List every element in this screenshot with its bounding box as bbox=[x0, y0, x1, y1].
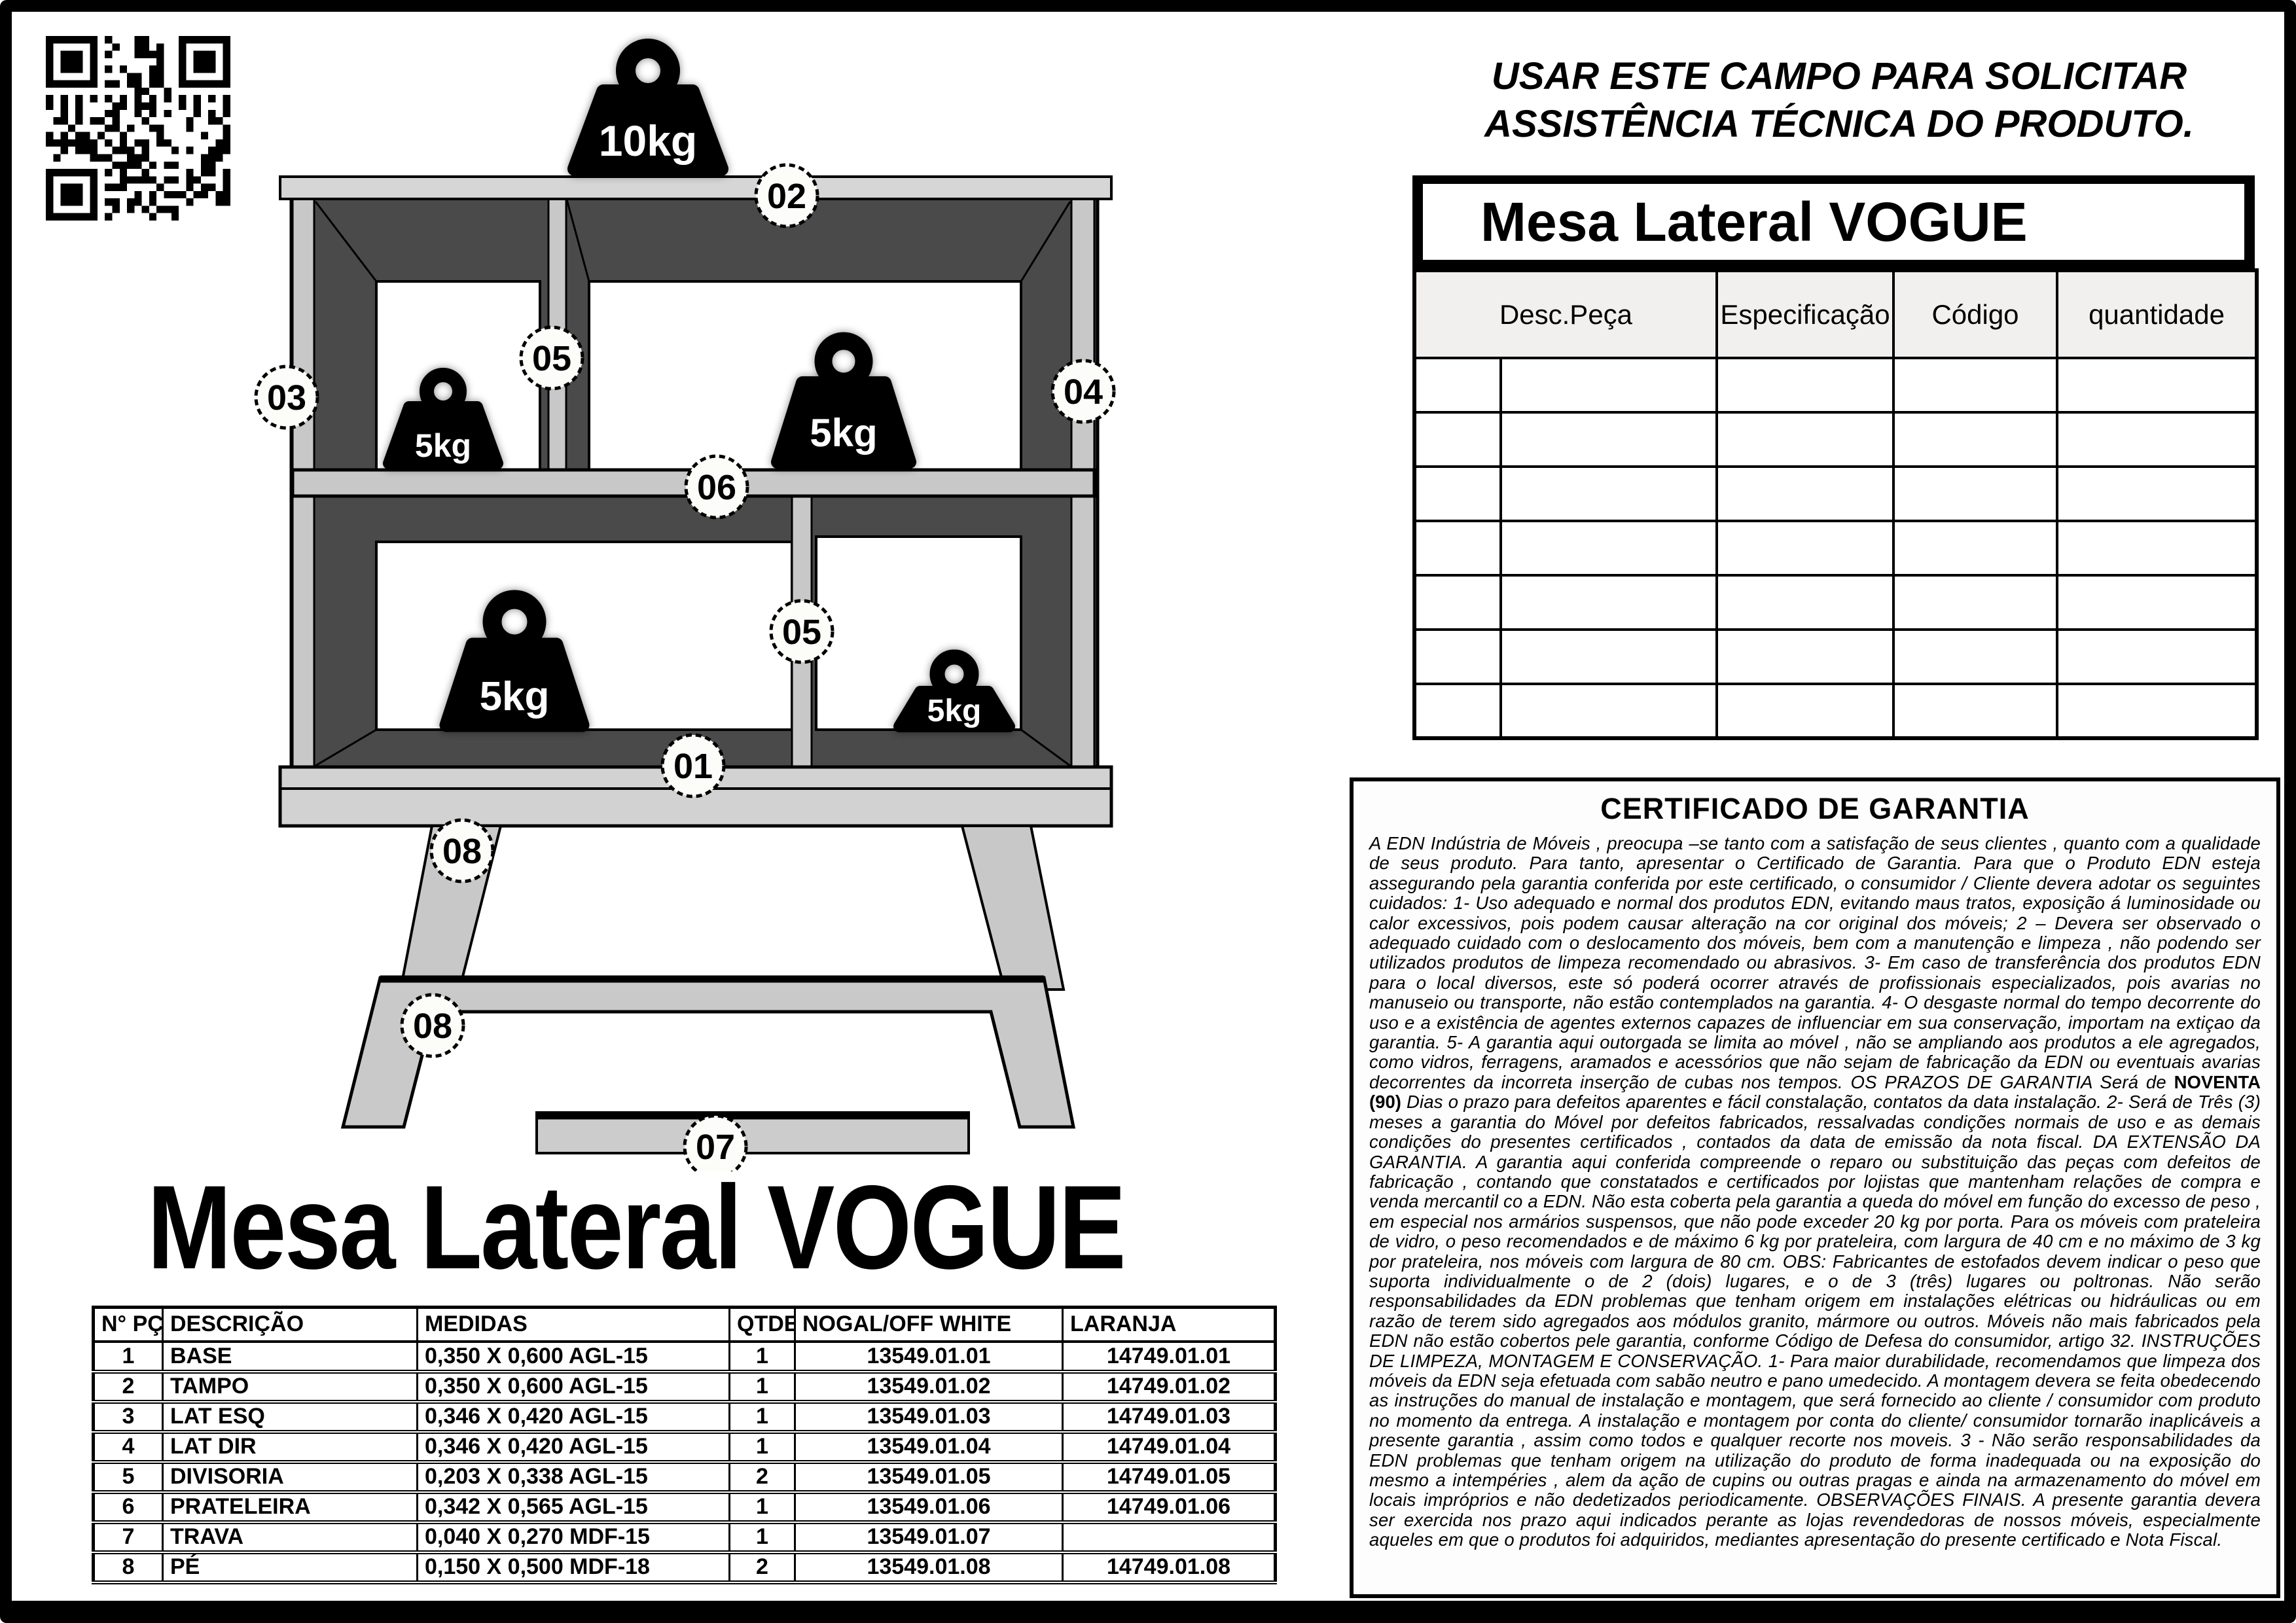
service-cell bbox=[1717, 412, 1893, 467]
service-cell bbox=[1414, 684, 1501, 738]
table-row: 6PRATELEIRA0,342 X 0,565 AGL-15113549.01… bbox=[94, 1492, 1276, 1522]
cell-qtde: 2 bbox=[730, 1462, 795, 1492]
cell-nogal: 13549.01.04 bbox=[795, 1432, 1063, 1462]
warranty-box: CERTIFICADO DE GARANTIA A EDN Indústria … bbox=[1350, 777, 2280, 1598]
service-cell bbox=[1893, 467, 2057, 521]
table-row: 7TRAVA0,040 X 0,270 MDF-15113549.01.07 bbox=[94, 1522, 1276, 1552]
service-cell bbox=[1501, 630, 1717, 684]
cell-num: 4 bbox=[94, 1432, 163, 1462]
service-cell bbox=[1414, 630, 1501, 684]
service-table-titlebar: Mesa Lateral VOGUE bbox=[1412, 175, 2255, 268]
cell-laranja: 14749.01.02 bbox=[1063, 1372, 1276, 1402]
parts-table-header-row: N° PÇ DESCRIÇÃO MEDIDAS QTDE NOGAL/OFF W… bbox=[94, 1308, 1276, 1342]
svg-text:04: 04 bbox=[1064, 372, 1103, 412]
service-empty-row bbox=[1414, 412, 2257, 467]
svg-text:08: 08 bbox=[442, 832, 482, 871]
service-cell bbox=[2057, 467, 2257, 521]
assembly-sheet: 10kg 5kg 5kg 5kg 5kg 02 03 bbox=[0, 0, 2296, 1623]
svg-text:5kg: 5kg bbox=[480, 674, 550, 719]
cell-med: 0,346 X 0,420 AGL-15 bbox=[418, 1432, 730, 1462]
cell-num: 3 bbox=[94, 1402, 163, 1432]
service-table-header-row: Desc.Peça Especificação Código quantidad… bbox=[1414, 270, 2257, 358]
cell-laranja: 14749.01.04 bbox=[1063, 1432, 1276, 1462]
cell-desc: BASE bbox=[163, 1342, 418, 1372]
cell-num: 7 bbox=[94, 1522, 163, 1552]
cell-qtde: 2 bbox=[730, 1552, 795, 1582]
cell-desc: LAT ESQ bbox=[163, 1402, 418, 1432]
svg-text:01: 01 bbox=[673, 747, 713, 786]
service-cell bbox=[1893, 358, 2057, 412]
cell-nogal: 13549.01.01 bbox=[795, 1342, 1063, 1372]
warranty-body: A EDN Indústria de Móveis , preocupa –se… bbox=[1369, 834, 2261, 1550]
cell-nogal: 13549.01.06 bbox=[795, 1492, 1063, 1522]
parts-table: N° PÇ DESCRIÇÃO MEDIDAS QTDE NOGAL/OFF W… bbox=[92, 1306, 1277, 1584]
cell-desc: LAT DIR bbox=[163, 1432, 418, 1462]
svg-text:5kg: 5kg bbox=[415, 427, 471, 464]
svg-text:06: 06 bbox=[697, 468, 736, 507]
right-leg bbox=[962, 826, 1064, 990]
cell-num: 1 bbox=[94, 1342, 163, 1372]
cell-qtde: 1 bbox=[730, 1432, 795, 1462]
col-codigo: Código bbox=[1893, 270, 2057, 358]
col-especificacao: Especificação bbox=[1717, 270, 1893, 358]
cell-med: 0,342 X 0,565 AGL-15 bbox=[418, 1492, 730, 1522]
service-cell bbox=[2057, 684, 2257, 738]
callout-06: 06 bbox=[686, 456, 747, 518]
lower-left-cell bbox=[376, 542, 792, 730]
service-table-title: Mesa Lateral VOGUE bbox=[1423, 184, 2244, 260]
weight-10kg: 10kg bbox=[575, 48, 721, 169]
svg-text:5kg: 5kg bbox=[927, 694, 982, 728]
service-empty-row bbox=[1414, 684, 2257, 738]
service-empty-row bbox=[1414, 358, 2257, 412]
table-row: 3LAT ESQ0,346 X 0,420 AGL-15113549.01.03… bbox=[94, 1402, 1276, 1432]
col-desc: DESCRIÇÃO bbox=[163, 1308, 418, 1342]
cell-num: 5 bbox=[94, 1462, 163, 1492]
col-nogal: NOGAL/OFF WHITE bbox=[795, 1308, 1063, 1342]
service-cell bbox=[2057, 412, 2257, 467]
cell-desc: TRAVA bbox=[163, 1522, 418, 1552]
cell-desc: PRATELEIRA bbox=[163, 1492, 418, 1522]
service-cell bbox=[1414, 467, 1501, 521]
service-cell bbox=[1501, 412, 1717, 467]
cell-laranja: 14749.01.03 bbox=[1063, 1402, 1276, 1432]
cell-laranja: 14749.01.01 bbox=[1063, 1342, 1276, 1372]
cell-num: 6 bbox=[94, 1492, 163, 1522]
cell-num: 8 bbox=[94, 1552, 163, 1582]
col-num: N° PÇ bbox=[94, 1308, 163, 1342]
service-cell bbox=[1414, 575, 1501, 630]
cell-laranja: 14749.01.08 bbox=[1063, 1552, 1276, 1582]
service-cell bbox=[1414, 521, 1501, 575]
service-cell bbox=[1501, 684, 1717, 738]
callout-05-upper: 05 bbox=[521, 327, 583, 389]
cell-nogal: 13549.01.07 bbox=[795, 1522, 1063, 1552]
cell-nogal: 13549.01.03 bbox=[795, 1402, 1063, 1432]
service-cell bbox=[1414, 358, 1501, 412]
col-desc-peca: Desc.Peça bbox=[1414, 270, 1717, 358]
warranty-title: CERTIFICADO DE GARANTIA bbox=[1369, 792, 2261, 826]
service-cell bbox=[1893, 412, 2057, 467]
callout-03: 03 bbox=[256, 366, 317, 428]
top-panel bbox=[280, 177, 1111, 199]
warranty-text-1: A EDN Indústria de Móveis , preocupa –se… bbox=[1369, 833, 2261, 1092]
col-laranja: LARANJA bbox=[1063, 1308, 1276, 1342]
service-cell bbox=[1501, 575, 1717, 630]
service-empty-row bbox=[1414, 521, 2257, 575]
service-cell bbox=[1501, 467, 1717, 521]
service-empty-row bbox=[1414, 630, 2257, 684]
service-cell bbox=[2057, 630, 2257, 684]
svg-text:05: 05 bbox=[532, 339, 571, 378]
service-note-line2: ASSISTÊNCIA TÉCNICA DO PRODUTO. bbox=[1414, 100, 2265, 148]
cell-med: 0,346 X 0,420 AGL-15 bbox=[418, 1402, 730, 1432]
service-cell bbox=[1501, 358, 1717, 412]
service-cell bbox=[1717, 630, 1893, 684]
leg-assembly-part bbox=[343, 978, 1073, 1127]
service-cell bbox=[2057, 575, 2257, 630]
service-note-line1: USAR ESTE CAMPO PARA SOLICITAR bbox=[1414, 52, 2265, 100]
service-cell bbox=[1893, 575, 2057, 630]
service-cell bbox=[1717, 684, 1893, 738]
table-row: 8PÉ0,150 X 0,500 MDF-18213549.01.0814749… bbox=[94, 1552, 1276, 1582]
service-cell bbox=[1893, 521, 2057, 575]
service-cell bbox=[1893, 684, 2057, 738]
svg-text:10kg: 10kg bbox=[599, 116, 697, 165]
warranty-text-2: Dias o prazo para defeitos aparentes e f… bbox=[1369, 1092, 2261, 1550]
service-cell bbox=[1414, 412, 1501, 467]
service-cell bbox=[1717, 358, 1893, 412]
cell-qtde: 1 bbox=[730, 1342, 795, 1372]
cell-nogal: 13549.01.08 bbox=[795, 1552, 1063, 1582]
cell-qtde: 1 bbox=[730, 1492, 795, 1522]
table-row: 5DIVISORIA0,203 X 0,338 AGL-15213549.01.… bbox=[94, 1462, 1276, 1492]
cell-laranja: 14749.01.06 bbox=[1063, 1492, 1276, 1522]
callout-04: 04 bbox=[1052, 361, 1114, 422]
col-qtde: QTDE bbox=[730, 1308, 795, 1342]
service-cell bbox=[1717, 575, 1893, 630]
service-cell bbox=[2057, 521, 2257, 575]
cell-med: 0,350 X 0,600 AGL-15 bbox=[418, 1342, 730, 1372]
cell-qtde: 1 bbox=[730, 1402, 795, 1432]
page-title: Mesa Lateral VOGUE bbox=[147, 1171, 1204, 1283]
cell-num: 2 bbox=[94, 1372, 163, 1402]
cell-nogal: 13549.01.02 bbox=[795, 1372, 1063, 1402]
service-table: Desc.Peça Especificação Código quantidad… bbox=[1412, 268, 2259, 740]
svg-text:05: 05 bbox=[782, 613, 821, 652]
cell-desc: PÉ bbox=[163, 1552, 418, 1582]
callout-08-attached: 08 bbox=[431, 820, 493, 882]
cell-desc: DIVISORIA bbox=[163, 1462, 418, 1492]
callout-01: 01 bbox=[662, 735, 724, 796]
callout-05-lower: 05 bbox=[771, 601, 833, 662]
svg-text:02: 02 bbox=[767, 177, 806, 216]
svg-text:03: 03 bbox=[267, 378, 306, 418]
service-cell bbox=[2057, 358, 2257, 412]
cell-med: 0,203 X 0,338 AGL-15 bbox=[418, 1462, 730, 1492]
svg-text:08: 08 bbox=[413, 1007, 452, 1046]
service-empty-row bbox=[1414, 467, 2257, 521]
cell-nogal: 13549.01.05 bbox=[795, 1462, 1063, 1492]
cell-med: 0,350 X 0,600 AGL-15 bbox=[418, 1372, 730, 1402]
svg-text:5kg: 5kg bbox=[810, 411, 877, 455]
cell-med: 0,040 X 0,270 MDF-15 bbox=[418, 1522, 730, 1552]
service-cell bbox=[1893, 630, 2057, 684]
service-cell bbox=[1717, 467, 1893, 521]
table-row: 4LAT DIR0,346 X 0,420 AGL-15113549.01.04… bbox=[94, 1432, 1276, 1462]
furniture-diagram: 10kg 5kg 5kg 5kg 5kg 02 03 bbox=[0, 0, 1374, 1171]
service-empty-row bbox=[1414, 575, 2257, 630]
col-quantidade: quantidade bbox=[2057, 270, 2257, 358]
callout-02: 02 bbox=[756, 165, 817, 226]
table-row: 1BASE0,350 X 0,600 AGL-15113549.01.01147… bbox=[94, 1342, 1276, 1372]
service-note: USAR ESTE CAMPO PARA SOLICITAR ASSISTÊNC… bbox=[1414, 52, 2265, 148]
cell-laranja bbox=[1063, 1522, 1276, 1552]
cell-desc: TAMPO bbox=[163, 1372, 418, 1402]
cell-qtde: 1 bbox=[730, 1372, 795, 1402]
cell-laranja: 14749.01.05 bbox=[1063, 1462, 1276, 1492]
cell-med: 0,150 X 0,500 MDF-18 bbox=[418, 1552, 730, 1582]
col-medidas: MEDIDAS bbox=[418, 1308, 730, 1342]
service-cell bbox=[1717, 521, 1893, 575]
service-cell bbox=[1501, 521, 1717, 575]
callout-08-part: 08 bbox=[402, 995, 463, 1056]
cell-qtde: 1 bbox=[730, 1522, 795, 1552]
table-row: 2TAMPO0,350 X 0,600 AGL-15113549.01.0214… bbox=[94, 1372, 1276, 1402]
